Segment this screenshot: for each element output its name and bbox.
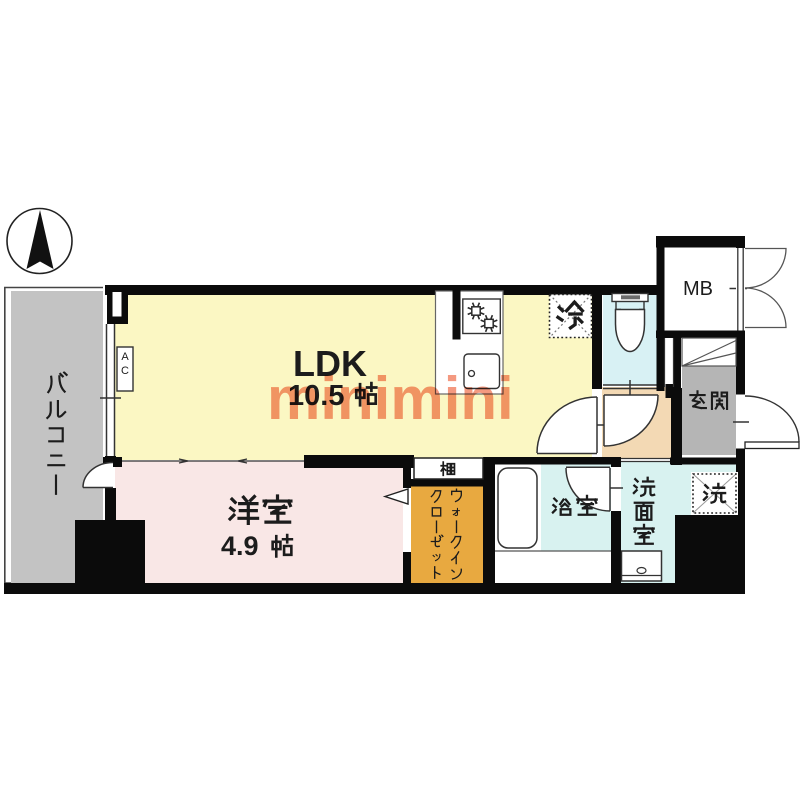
svg-text:C: C xyxy=(121,365,129,377)
svg-text:A: A xyxy=(121,351,129,363)
svg-text:4.9: 4.9 xyxy=(221,531,259,561)
svg-text:minimini: minimini xyxy=(267,365,514,432)
svg-text:MB: MB xyxy=(683,278,713,300)
